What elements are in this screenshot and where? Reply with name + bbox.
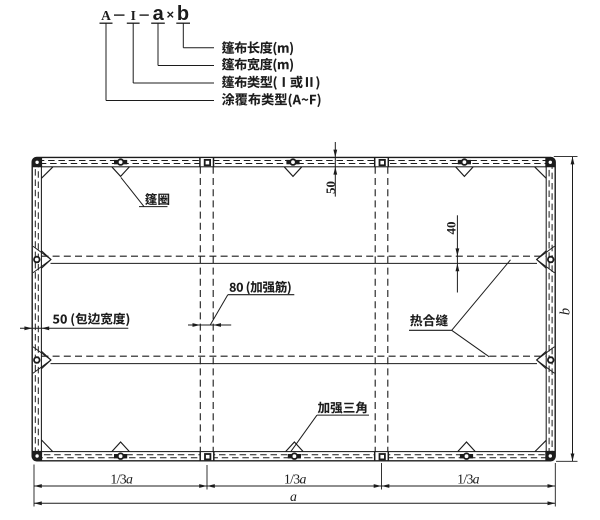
svg-text:40: 40 [443,222,458,235]
svg-text:1/3a: 1/3a [110,471,133,486]
svg-text:1/3a: 1/3a [284,471,307,486]
svg-text:×: × [167,7,175,22]
svg-text:a: a [290,489,297,504]
svg-text:A: A [101,8,111,23]
svg-text:1/3a: 1/3a [457,471,480,486]
svg-text:b: b [177,3,189,25]
svg-text:a: a [153,3,165,25]
svg-text:50: 50 [323,181,338,194]
svg-text:I: I [131,8,136,23]
svg-text:b: b [558,308,574,315]
